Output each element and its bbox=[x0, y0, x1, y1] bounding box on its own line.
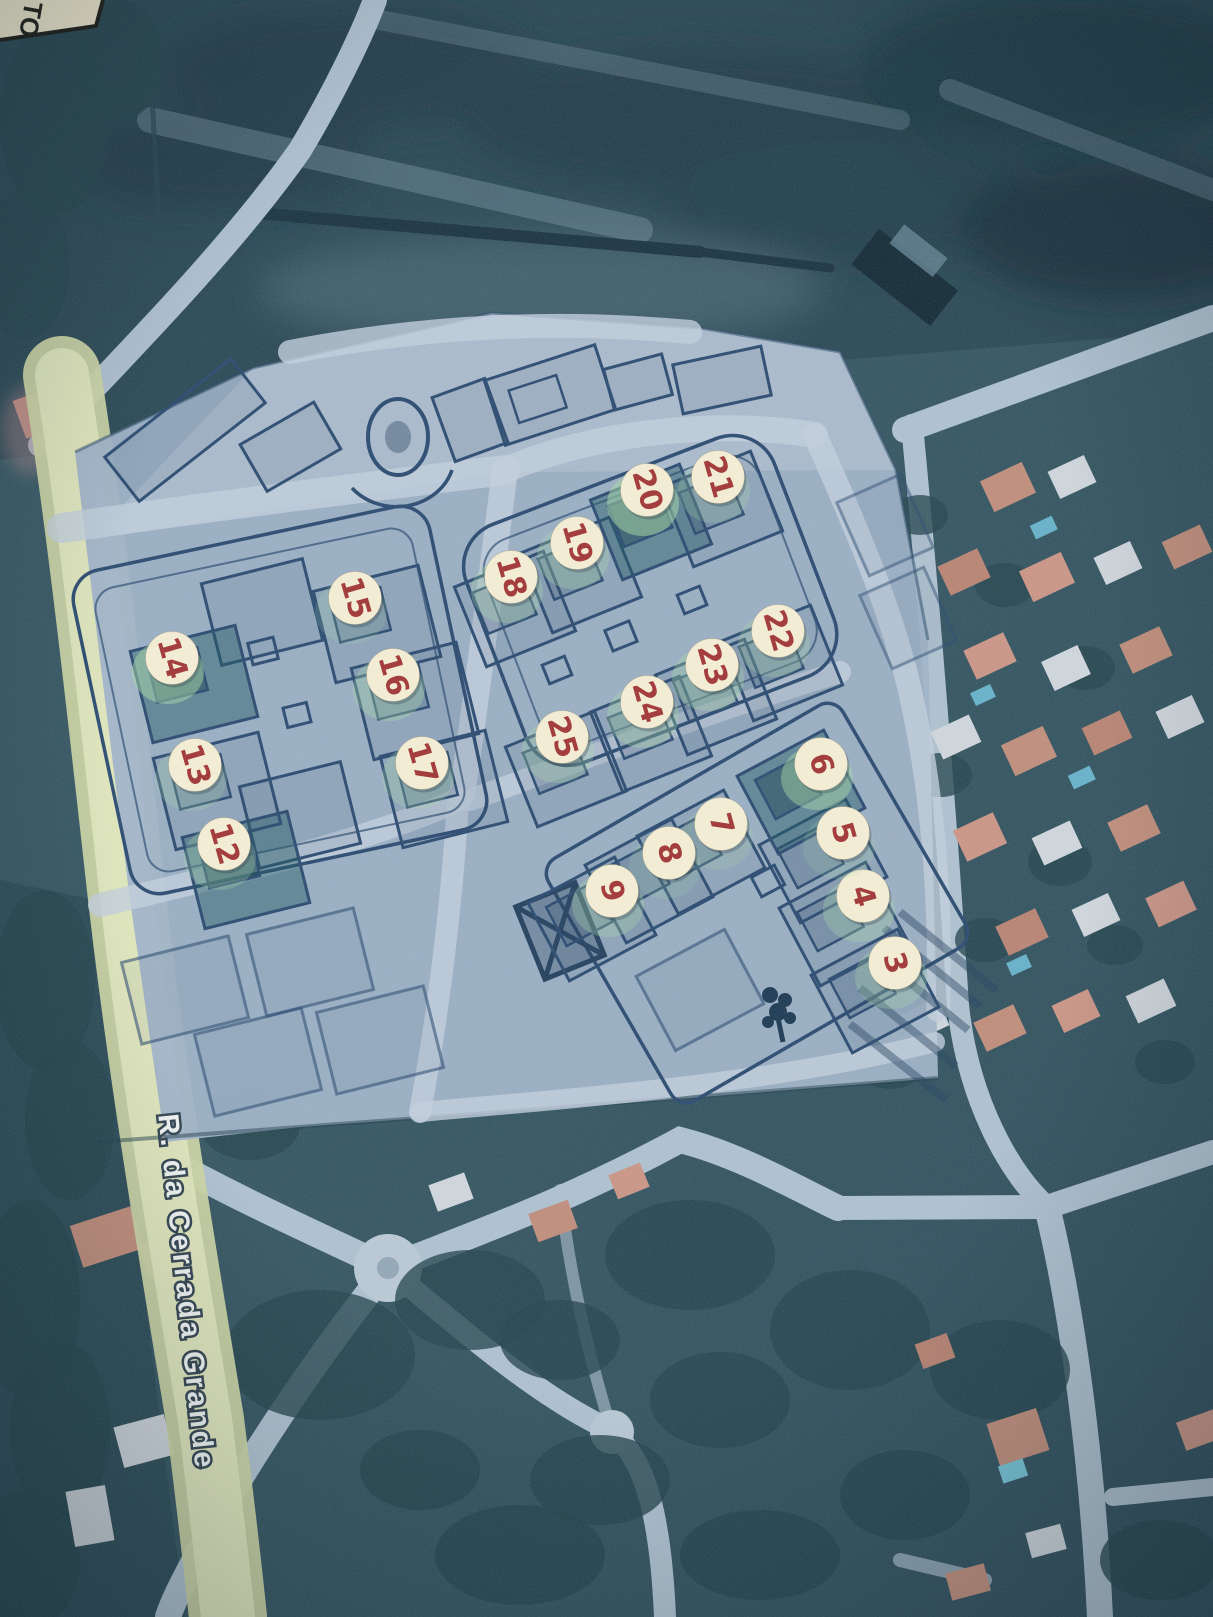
aerial-lot-map-photo: 34567891213141516171819202122232425 R. d… bbox=[0, 0, 1213, 1617]
vignette bbox=[0, 0, 1213, 1617]
map-canvas: 34567891213141516171819202122232425 R. d… bbox=[0, 0, 1213, 1617]
